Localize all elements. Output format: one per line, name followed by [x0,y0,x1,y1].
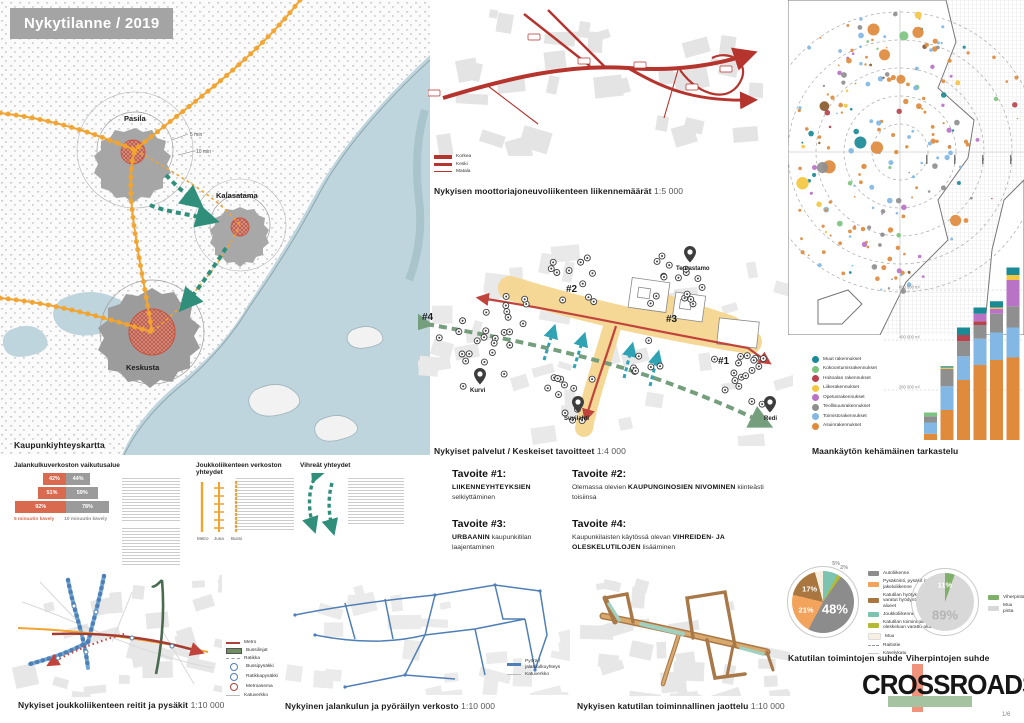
legend-row: Pyörä / jalankulkuyhteys [507,659,569,670]
target-label-4: #4 [422,312,434,323]
poster-page: Pasila Kalasatama Keskusta 5 min 10 min … [0,0,1024,723]
bike-walk-legend: Pyörä / jalankulkuyhteysKatuverkko [507,659,569,680]
street-space-map: Nykyisen katutilan toiminnallinen jaotte… [575,578,795,713]
goal-1-title: Tavoite #1: [452,468,564,480]
page-number: 1/6 [1002,712,1010,718]
pies-section: AutoliikennePysäköinti, pysäkit ja jakel… [780,565,1024,665]
walk-legend-title: Jalankulkuverkoston vaikutusalue [14,462,189,469]
pie-legend-row: Muu pinta [988,603,1024,614]
pie-legend-row: Viherpinta [988,595,1024,601]
city-map-caption: Kaupunkiyhteyskartta [14,440,105,450]
district-label-keskusta: Keskusta [126,363,160,372]
pie-percent-label: 2% [840,565,848,571]
annotation-5min: 5 min [190,132,202,138]
place-label-suvilahti: Suvilahti [564,416,589,422]
transit-routes-graphic [12,572,222,697]
land-use-legend-row: Teollisuusrakennukset [812,404,890,411]
services-map-graphic: #2 #3 #4 #1 Teurastamo Kurvi Suvilahti R… [418,228,793,446]
green-surfaces-legend: ViherpintaMuu pinta [988,595,1024,617]
goal-2-title: Tavoite #2: [572,468,787,480]
legend-row: Bussipysäkki [226,663,280,671]
legend-row: Bussilinjat [226,648,280,654]
walk-chart-row: 42%44% [14,473,129,486]
land-use-legend-row: Opetusrakennukset [812,394,890,401]
land-use-bar-chart: 200 000 m²400 000 m²600 000 m² [884,248,1024,448]
street-space-graphic [575,578,790,696]
district-label-pasila: Pasila [124,114,147,123]
place-label-teurastamo: Teurastamo [676,266,710,272]
traffic-legend: KorkeaKeskiMatala [434,154,471,177]
land-use-legend-row: Liikerakennukset [812,385,890,392]
brand-name: CROSSROADS [862,668,1018,701]
walk-legend-text-1 [122,478,180,522]
land-use-legend: Muut rakennuksetKokoontumisrakennuksetHo… [812,356,890,432]
land-use-caption: Maankäytön kehämäinen tarkastelu [812,446,1022,456]
city-map-graphic: Pasila Kalasatama Keskusta 5 min 10 min [0,0,430,455]
page-title: Nykytilanne / 2019 [10,8,173,39]
walkability-chart: 42%44%51%59%92%78% [14,473,129,514]
traffic-map-caption: Nykyisen moottoriajoneuvoliikenteen liik… [434,186,683,196]
land-use-legend-row: Muut rakennukset [812,356,890,363]
goal-2: Tavoite #2: Olemassa olevien KAUPUNGINOS… [572,468,787,503]
legend-row: Metro [226,640,280,646]
bike-walk-caption: Nykyinen jalankulun ja pyöräilyn verkost… [285,701,495,711]
land-use-legend-row: Asuinrakennukset [812,423,890,430]
legend-row: Metroasema [226,683,280,691]
transit-routes-legend: MetroBussilinjatRatikkaBussipysäkkiRatik… [226,640,280,701]
legend-row: Ratikka [226,656,280,662]
traffic-volume-map: KorkeaKeskiMatala Nykyisen moottoriajone… [428,6,763,201]
services-map: #2 #3 #4 #1 Teurastamo Kurvi Suvilahti R… [418,228,793,458]
goal-3-title: Tavoite #3: [452,518,572,530]
mode-label-metro: Metro [197,536,209,541]
brand-logo: CROSSROADS [862,660,1018,712]
city-connection-map: Pasila Kalasatama Keskusta 5 min 10 min … [0,0,430,455]
legend-row: Ratikkapysäkki [226,673,280,681]
walk-chart-row: 51%59% [14,487,129,500]
green-legend-text [348,478,404,524]
land-use-legend-row: Toimistorakennukset [812,413,890,420]
place-label-kurvi: Kurvi [470,388,486,394]
land-use-panel: 200 000 m²400 000 m²600 000 m² Muut rake… [788,0,1024,458]
svg-text:600 000 m²: 600 000 m² [899,285,921,290]
legend-row: Katuverkko [226,693,280,699]
pie-legend-row: Raitiotie [868,643,944,649]
transit-routes-caption: Nykyiset joukkoliikenteen reitit ja pysä… [18,700,224,710]
services-map-caption: Nykyiset palvelut / Keskeiset tavoitteet… [434,446,626,456]
pie-percent-label: 89% [932,608,958,623]
walk-legend-text-2 [122,528,180,566]
target-label-1: #1 [718,356,730,367]
traffic-map-graphic [428,6,763,156]
goal-4-title: Tavoite #4: [572,518,792,530]
district-label-kalasatama: Kalasatama [216,191,259,200]
bike-walk-map: Pyörä / jalankulkuyhteysKatuverkko Nykyi… [285,575,575,712]
pie-percent-label: 17% [802,585,817,594]
svg-text:200 000 m²: 200 000 m² [899,385,921,390]
svg-text:400 000 m²: 400 000 m² [899,335,921,340]
place-label-redi: Redi [764,416,777,422]
land-use-legend-row: Kokoontumisrakennukset [812,366,890,373]
mode-label-juna: Juna [214,536,224,541]
goal-3: Tavoite #3: URBAANIN kaupunkitilan laaje… [452,518,572,553]
green-connection-symbols [300,473,344,539]
walk-series-b-label: 10 minuutin kävely [64,517,107,522]
pie-percent-label: 48% [822,602,848,617]
walk-series-a-label: 5 minuutin kävely [14,517,54,522]
annotation-10min: 10 min [196,149,211,155]
transit-legend-title: Joukkoliikenteen verkoston yhteydet [196,462,296,476]
goal-4: Tavoite #4: Kaupunkilaisten käytössä ole… [572,518,792,553]
walk-chart-row: 92%78% [14,501,129,514]
pie-legend-row: Muu [868,633,944,640]
transit-legend-text [236,478,294,530]
traffic-legend-row: Keski [434,162,471,168]
target-label-3: #3 [666,314,678,325]
pie-percent-label: 11% [938,580,953,589]
traffic-legend-row: Matala [434,169,471,175]
target-label-2: #2 [566,284,578,295]
land-use-legend-row: Hoitoalan rakennukset [812,375,890,382]
legend-row: Katuverkko [507,672,569,678]
goal-1: Tavoite #1: LIIKENNEYHTEYKSIEN selkiyttä… [452,468,564,503]
mode-label-bussi: Bussi [231,536,242,541]
pie-percent-label: 5% [832,561,840,567]
traffic-legend-row: Korkea [434,154,471,160]
green-legend-title: Vihreät yhteydet [300,462,410,469]
street-space-caption: Nykyisen katutilan toiminnallinen jaotte… [577,701,785,711]
pie-percent-label: 21% [799,605,814,614]
transit-routes-map: MetroBussilinjatRatikkaBussipysäkkiRatik… [12,572,280,712]
